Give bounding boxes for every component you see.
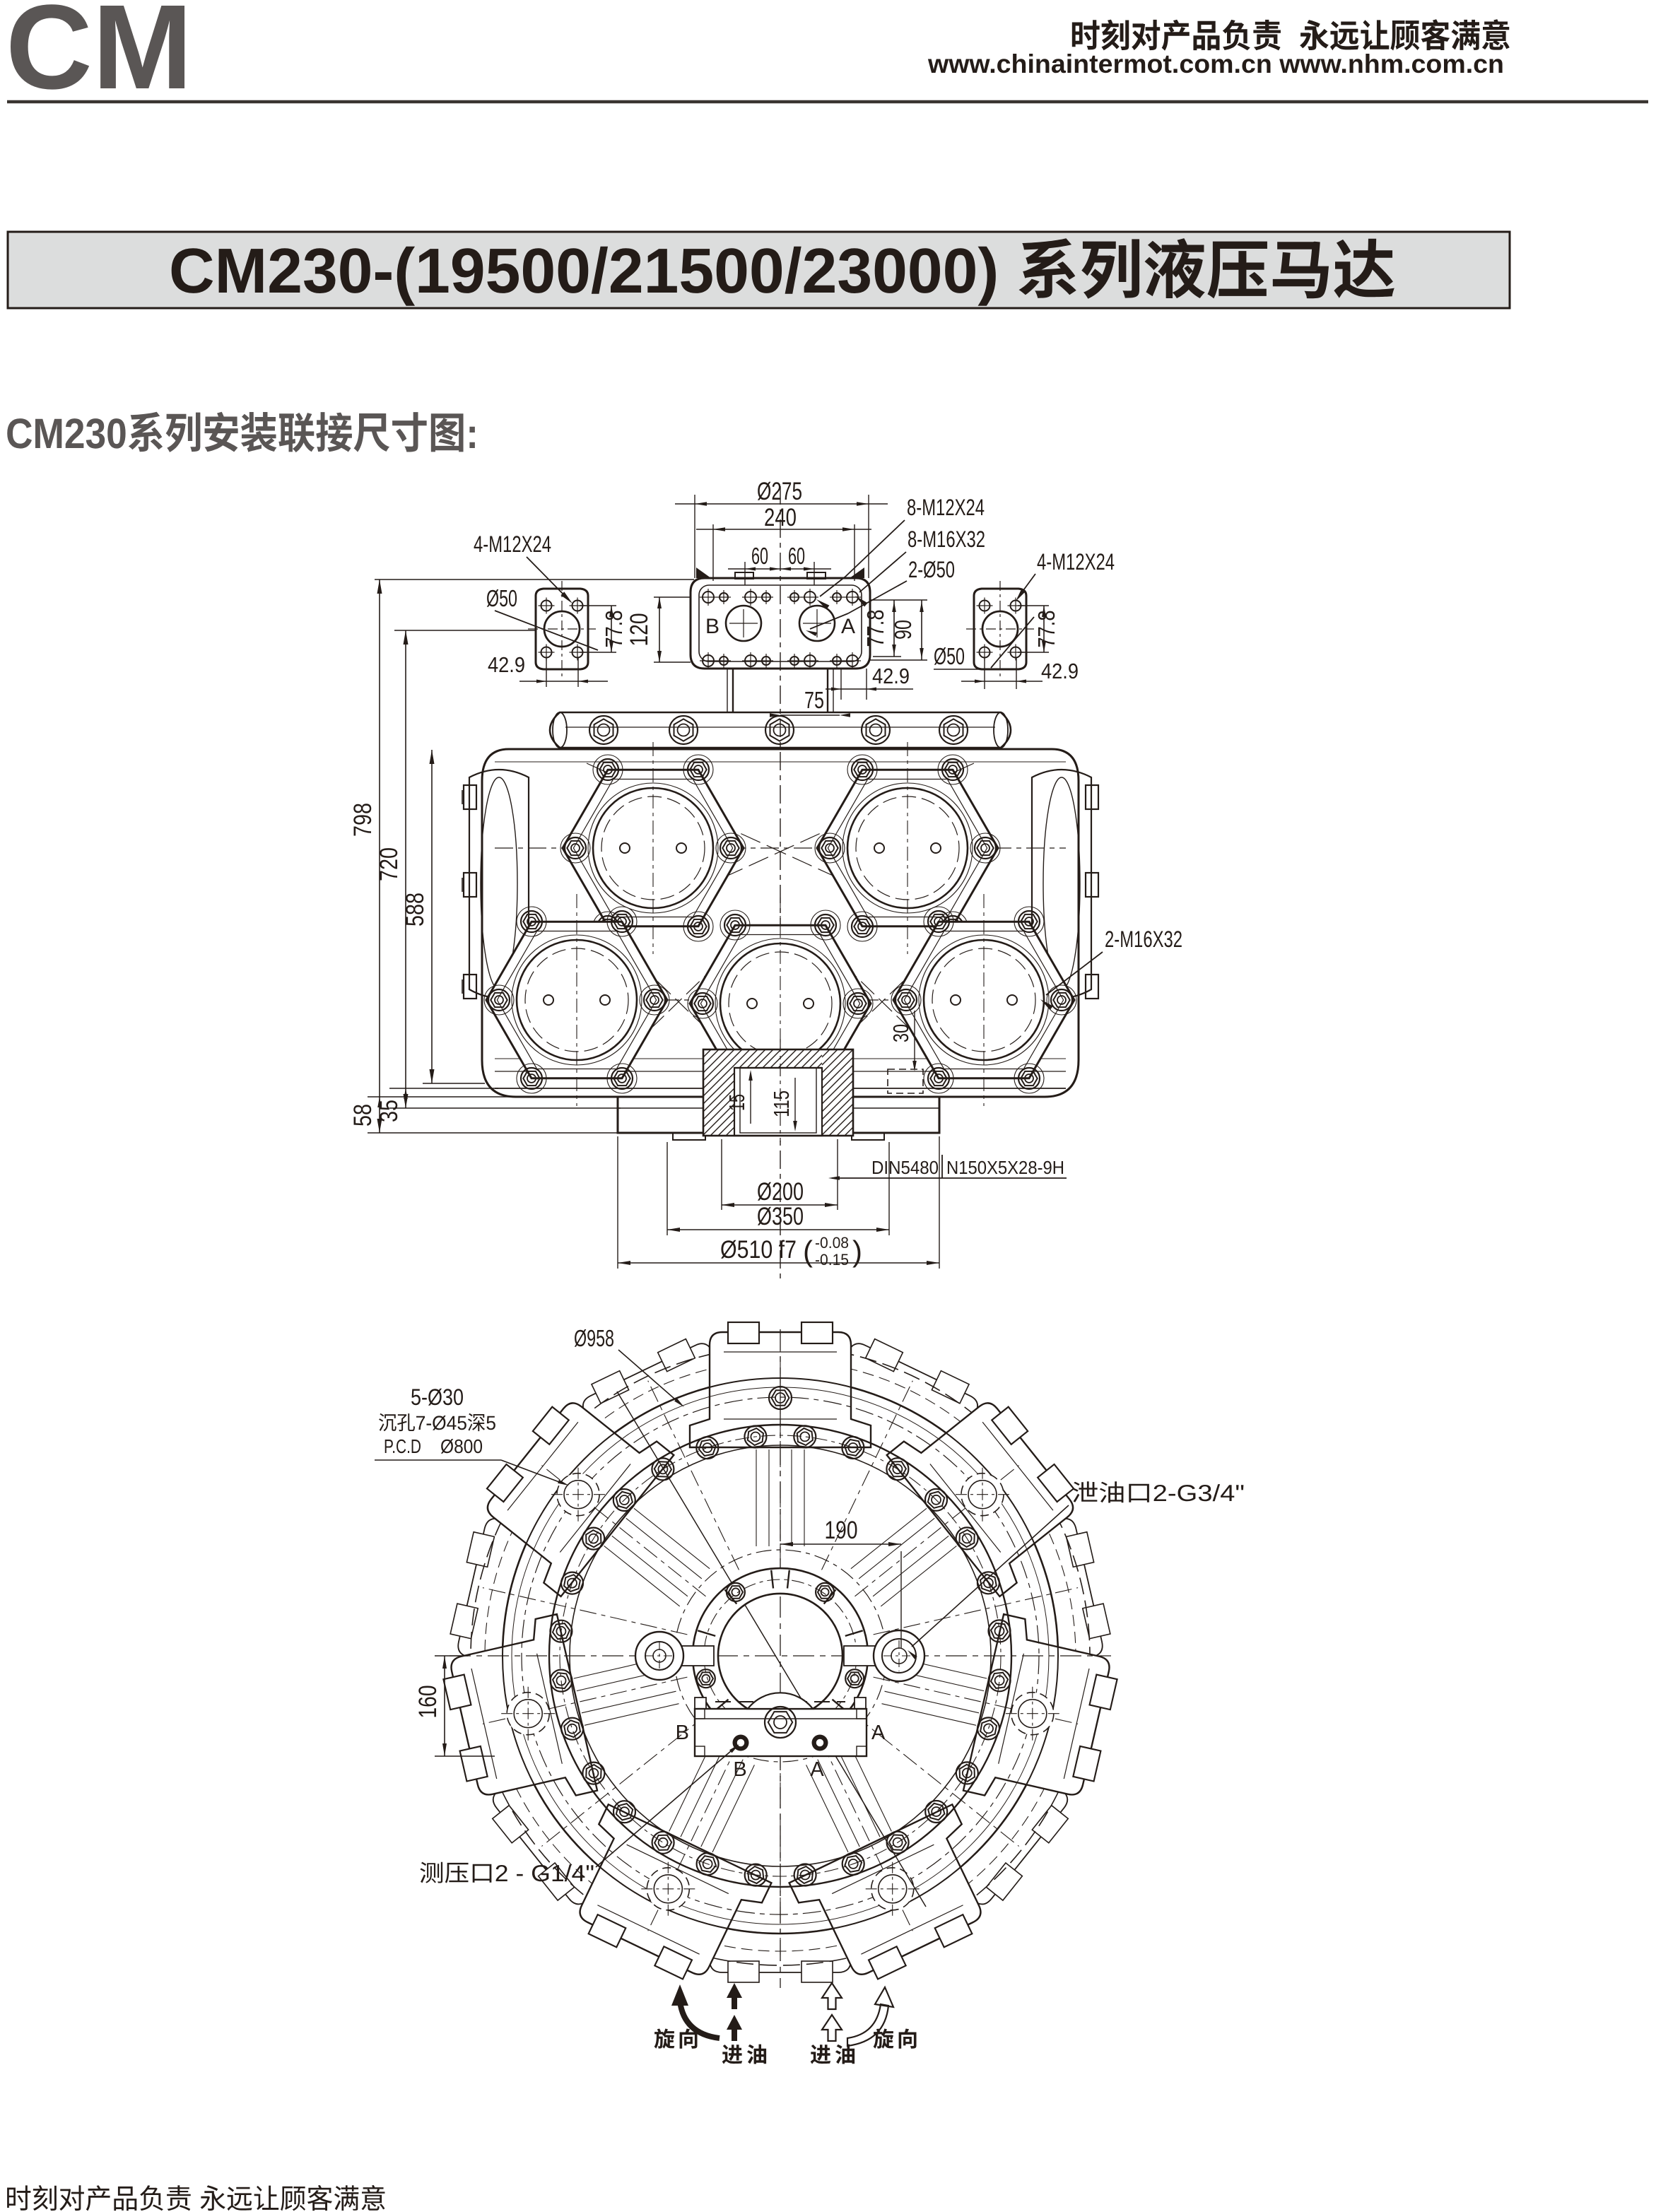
svg-text:DIN5480: DIN5480 (871, 1157, 939, 1178)
svg-text:Ø350: Ø350 (757, 1203, 804, 1230)
svg-text:A: A (810, 1758, 824, 1781)
svg-text:N150X5X28-9H: N150X5X28-9H (946, 1157, 1064, 1178)
svg-text:): ) (852, 1235, 862, 1268)
svg-text:720: 720 (375, 847, 403, 881)
svg-text:Ø50: Ø50 (486, 585, 517, 611)
svg-text:42.9: 42.9 (488, 652, 525, 677)
svg-text:58: 58 (349, 1104, 377, 1126)
svg-text:B: B (705, 615, 720, 638)
svg-text:42.9: 42.9 (872, 664, 910, 688)
svg-text:588: 588 (401, 893, 429, 926)
svg-text:160: 160 (414, 1686, 442, 1719)
svg-text:77.8: 77.8 (1033, 611, 1059, 648)
svg-text:15: 15 (724, 1094, 749, 1111)
svg-text:8-M16X32: 8-M16X32 (908, 526, 985, 552)
svg-text:-0.15: -0.15 (815, 1251, 849, 1269)
svg-text:4-M12X24: 4-M12X24 (474, 531, 551, 557)
svg-text:B: B (676, 1722, 689, 1744)
svg-text:-0.08: -0.08 (815, 1234, 849, 1252)
svg-text:(: ( (803, 1235, 813, 1268)
svg-text:Ø200: Ø200 (757, 1178, 804, 1206)
svg-text:Ø50: Ø50 (934, 643, 965, 669)
svg-text:190: 190 (825, 1517, 858, 1544)
svg-text:A: A (871, 1722, 886, 1744)
svg-text:60: 60 (751, 543, 768, 569)
svg-text:120: 120 (626, 613, 653, 647)
svg-text:30: 30 (888, 1024, 913, 1042)
svg-text:798: 798 (349, 803, 377, 837)
svg-text:B: B (733, 1758, 746, 1781)
svg-text:2-Ø50: 2-Ø50 (908, 557, 955, 582)
svg-text:5-Ø30: 5-Ø30 (411, 1384, 464, 1410)
svg-text:CM: CM (6, 0, 192, 114)
svg-text:Ø275: Ø275 (757, 478, 802, 505)
svg-text:77.8: 77.8 (601, 611, 627, 648)
svg-text:4-M12X24: 4-M12X24 (1037, 549, 1115, 575)
svg-text:A: A (841, 615, 855, 638)
svg-text:35: 35 (375, 1100, 403, 1122)
svg-text:77.8: 77.8 (862, 610, 888, 647)
svg-text:Ø958: Ø958 (574, 1325, 614, 1351)
svg-text:8-M12X24: 8-M12X24 (907, 495, 985, 520)
svg-text:90: 90 (890, 620, 916, 640)
svg-text:42.9: 42.9 (1041, 659, 1079, 683)
svg-text:2-M16X32: 2-M16X32 (1105, 926, 1182, 952)
svg-text:Ø510 f7: Ø510 f7 (720, 1236, 797, 1264)
svg-text:115: 115 (769, 1090, 794, 1117)
svg-text:P.C.D: P.C.D (384, 1435, 421, 1457)
svg-text:Ø800: Ø800 (440, 1435, 483, 1457)
svg-text:240: 240 (764, 504, 797, 531)
svg-text:www.chinaintermot.com.cn www.: www.chinaintermot.com.cn www.nhm.com.cn (927, 49, 1504, 78)
svg-text:60: 60 (788, 543, 805, 569)
svg-text:75: 75 (804, 687, 824, 713)
